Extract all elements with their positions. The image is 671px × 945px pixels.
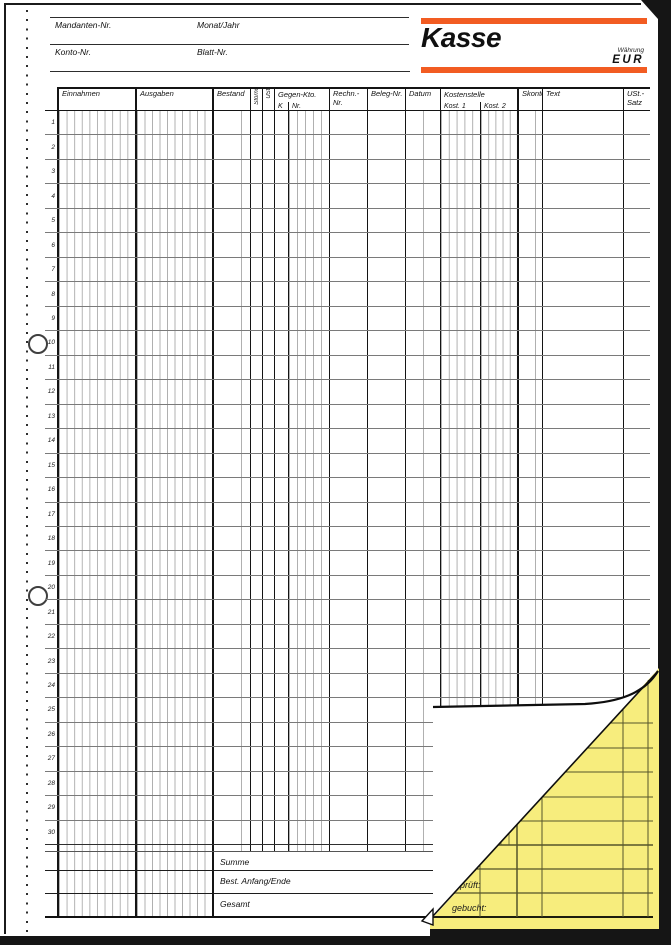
entry-cell	[329, 478, 367, 501]
entry-cell	[274, 282, 288, 305]
header-text: Text	[542, 87, 623, 110]
row-number: 13	[45, 405, 57, 428]
entry-cell	[212, 111, 250, 134]
entry-cell	[440, 478, 480, 501]
entry-cell	[288, 307, 329, 330]
entry-cell	[542, 405, 623, 428]
entry-cell	[57, 209, 135, 232]
entry-cell	[517, 135, 542, 158]
entry-cell	[262, 282, 274, 305]
entry-cell	[329, 576, 367, 599]
entry-cell	[367, 674, 405, 697]
row-number: 25	[45, 698, 57, 721]
entry-cell	[542, 527, 623, 550]
table-body: 1234567891011121314151617181920212223242…	[45, 111, 650, 845]
entry-cell	[57, 649, 135, 672]
entry-cell	[405, 454, 440, 477]
header-storno: Storno	[250, 87, 262, 110]
entry-cell	[623, 380, 650, 403]
entry-cell	[274, 478, 288, 501]
entry-cell	[135, 723, 212, 746]
header-skonto: Skonto	[517, 87, 542, 110]
entry-cell	[623, 845, 650, 851]
row-number: 2	[45, 135, 57, 158]
entry-cell	[250, 111, 262, 134]
header-kostenstelle: Kostenstelle	[441, 87, 517, 102]
entry-cell	[288, 454, 329, 477]
table-row: 26	[45, 723, 650, 747]
entry-cell	[135, 772, 212, 795]
entry-cell	[542, 454, 623, 477]
entry-cell	[262, 111, 274, 134]
entry-cell	[212, 503, 250, 526]
entry-cell	[212, 845, 250, 851]
entry-cell	[57, 307, 135, 330]
header-beleg-nr: Beleg-Nr.	[367, 87, 405, 110]
entry-cell	[623, 135, 650, 158]
tick-strip-row	[45, 845, 650, 852]
entry-cell	[623, 503, 650, 526]
row-number: 1	[45, 111, 57, 134]
entry-cell	[262, 356, 274, 379]
entry-cell	[262, 429, 274, 452]
entry-cell	[542, 503, 623, 526]
entry-cell	[517, 380, 542, 403]
entry-cell	[262, 380, 274, 403]
entry-cell	[405, 233, 440, 256]
entry-cell	[262, 600, 274, 623]
entry-cell	[623, 429, 650, 452]
entry-cell	[623, 331, 650, 354]
entry-cell	[623, 649, 650, 672]
entry-cell	[623, 356, 650, 379]
entry-cell	[250, 649, 262, 672]
entry-cell	[288, 233, 329, 256]
entry-cell	[405, 307, 440, 330]
entry-cell	[367, 282, 405, 305]
row-number: 28	[45, 772, 57, 795]
table-row: 29	[45, 796, 650, 820]
entry-cell	[57, 503, 135, 526]
entry-cell	[329, 821, 367, 844]
entry-cell	[288, 845, 329, 851]
table-row: 13	[45, 405, 650, 429]
entry-cell	[517, 674, 542, 697]
monat-jahr-label: Monat/Jahr	[197, 20, 240, 30]
entry-cell	[367, 160, 405, 183]
mandant-nr-label: Mandanten-Nr.	[55, 20, 111, 30]
entry-cell	[135, 331, 212, 354]
entry-cell	[623, 160, 650, 183]
entry-cell	[329, 551, 367, 574]
table-row: 25	[45, 698, 650, 722]
entry-cell	[274, 698, 288, 721]
row-number: 23	[45, 649, 57, 672]
entry-cell	[274, 405, 288, 428]
entry-cell	[517, 503, 542, 526]
entry-cell	[623, 723, 650, 746]
entry-cell	[274, 845, 288, 851]
entry-cell	[57, 405, 135, 428]
entry-cell	[288, 821, 329, 844]
entry-cell	[329, 723, 367, 746]
entry-cell	[329, 649, 367, 672]
entry-cell	[262, 625, 274, 648]
table-row: 21	[45, 600, 650, 624]
entry-cell	[440, 454, 480, 477]
entry-cell	[517, 821, 542, 844]
entry-cell	[288, 625, 329, 648]
entry-cell	[517, 184, 542, 207]
entry-cell	[405, 747, 440, 770]
entry-cell	[542, 209, 623, 232]
entry-cell	[57, 698, 135, 721]
entry-cell	[57, 625, 135, 648]
entry-cell	[250, 674, 262, 697]
entry-cell	[623, 111, 650, 134]
entry-cell	[212, 551, 250, 574]
entry-cell	[480, 429, 517, 452]
header-einnahmen: Einnahmen	[57, 87, 135, 110]
header-gegenkonto-group: Gegen-Kto. K Nr.	[274, 87, 329, 110]
entry-cell	[542, 160, 623, 183]
entry-cell	[480, 674, 517, 697]
entry-cell	[542, 111, 623, 134]
entry-cell	[405, 796, 440, 819]
entry-cell	[542, 796, 623, 819]
entry-cell	[329, 429, 367, 452]
entry-cell	[250, 796, 262, 819]
table-row: 17	[45, 503, 650, 527]
entry-cell	[517, 551, 542, 574]
entry-cell	[274, 723, 288, 746]
entry-cell	[405, 405, 440, 428]
entry-cell	[480, 551, 517, 574]
entry-cell	[262, 649, 274, 672]
entry-cell	[250, 356, 262, 379]
entry-cell	[57, 135, 135, 158]
entry-cell	[480, 111, 517, 134]
entry-cell	[405, 723, 440, 746]
entry-cell	[542, 380, 623, 403]
entry-cell	[542, 307, 623, 330]
entry-cell	[135, 576, 212, 599]
entry-cell	[367, 405, 405, 428]
entry-cell	[262, 307, 274, 330]
entry-cell	[329, 796, 367, 819]
entry-cell	[262, 258, 274, 281]
entry-cell	[274, 796, 288, 819]
entry-cell	[288, 478, 329, 501]
entry-cell	[57, 551, 135, 574]
entry-cell	[623, 184, 650, 207]
entry-cell	[623, 674, 650, 697]
entry-cell	[135, 747, 212, 770]
entry-cell	[288, 160, 329, 183]
entry-cell	[405, 380, 440, 403]
entry-cell	[542, 674, 623, 697]
entry-cell	[212, 625, 250, 648]
entry-cell	[367, 478, 405, 501]
entry-cell	[262, 821, 274, 844]
row-number: 12	[45, 380, 57, 403]
entry-cell	[274, 503, 288, 526]
entry-cell	[135, 625, 212, 648]
entry-cell	[250, 527, 262, 550]
entry-cell	[517, 331, 542, 354]
entry-cell	[367, 821, 405, 844]
entry-cell	[440, 307, 480, 330]
entry-cell	[367, 723, 405, 746]
entry-cell	[288, 674, 329, 697]
row-number: 8	[45, 282, 57, 305]
table-row: 8	[45, 282, 650, 306]
entry-cell	[440, 331, 480, 354]
entry-cell	[440, 135, 480, 158]
entry-cell	[135, 551, 212, 574]
entry-cell	[517, 747, 542, 770]
table-row: 10	[45, 331, 650, 355]
table-row: 16	[45, 478, 650, 502]
table-row: 27	[45, 747, 650, 771]
entry-cell	[517, 796, 542, 819]
entry-cell	[57, 723, 135, 746]
entry-cell	[517, 282, 542, 305]
entry-cell	[212, 160, 250, 183]
entry-cell	[57, 478, 135, 501]
entry-cell	[329, 845, 367, 851]
entry-cell	[288, 405, 329, 428]
table-row: 14	[45, 429, 650, 453]
header-rechnungs-nr: Rechn.-Nr.	[329, 87, 367, 110]
entry-cell	[329, 111, 367, 134]
perforation-dots	[26, 10, 28, 932]
entry-cell	[440, 380, 480, 403]
entry-cell	[623, 821, 650, 844]
entry-cell	[480, 184, 517, 207]
row-number: 18	[45, 527, 57, 550]
entry-cell	[262, 674, 274, 697]
entry-cell	[57, 527, 135, 550]
entry-cell	[250, 478, 262, 501]
entry-cell	[405, 551, 440, 574]
entry-cell	[329, 600, 367, 623]
entry-cell	[542, 551, 623, 574]
entry-cell	[405, 209, 440, 232]
entry-cell	[517, 258, 542, 281]
entry-cell	[250, 258, 262, 281]
entry-cell	[135, 135, 212, 158]
entry-cell	[274, 331, 288, 354]
entry-cell	[135, 503, 212, 526]
entry-cell	[480, 796, 517, 819]
entry-cell	[367, 380, 405, 403]
row-number: 16	[45, 478, 57, 501]
entry-cell	[135, 796, 212, 819]
entry-cell	[212, 747, 250, 770]
row-number: 11	[45, 356, 57, 379]
entry-cell	[274, 576, 288, 599]
entry-cell	[405, 772, 440, 795]
entry-cell	[367, 331, 405, 354]
entry-cell	[288, 576, 329, 599]
page-top-border	[4, 3, 641, 5]
table-row: 23	[45, 649, 650, 673]
entry-cell	[288, 698, 329, 721]
entry-cell	[367, 796, 405, 819]
entry-cell	[405, 649, 440, 672]
entry-cell	[288, 380, 329, 403]
entry-cell	[405, 845, 440, 851]
entry-cell	[262, 209, 274, 232]
entry-cell	[517, 429, 542, 452]
row-number: 22	[45, 625, 57, 648]
entry-cell	[262, 331, 274, 354]
entry-cell	[274, 649, 288, 672]
entry-cell	[480, 821, 517, 844]
entry-cell	[440, 405, 480, 428]
entry-cell	[517, 405, 542, 428]
entry-cell	[250, 698, 262, 721]
entry-cell	[367, 233, 405, 256]
entry-cell	[288, 796, 329, 819]
entry-cell	[542, 747, 623, 770]
entry-cell	[250, 135, 262, 158]
entry-cell	[542, 184, 623, 207]
entry-cell	[623, 747, 650, 770]
entry-cell	[517, 772, 542, 795]
entry-cell	[135, 405, 212, 428]
entry-cell	[274, 184, 288, 207]
entry-cell	[274, 111, 288, 134]
entry-cell	[288, 649, 329, 672]
entry-cell	[367, 135, 405, 158]
entry-cell	[135, 845, 212, 851]
entry-cell	[262, 723, 274, 746]
entry-cell	[57, 674, 135, 697]
entry-cell	[212, 356, 250, 379]
entry-cell	[542, 698, 623, 721]
table-row: 11	[45, 356, 650, 380]
entry-cell	[250, 160, 262, 183]
table-row: 6	[45, 233, 650, 257]
entry-cell	[542, 331, 623, 354]
entry-cell	[135, 160, 212, 183]
entry-cell	[480, 258, 517, 281]
entry-cell	[250, 307, 262, 330]
entry-cell	[517, 478, 542, 501]
entry-cell	[135, 674, 212, 697]
entry-cell	[250, 600, 262, 623]
row-number: 9	[45, 307, 57, 330]
entry-cell	[329, 454, 367, 477]
entry-cell	[262, 184, 274, 207]
entry-cell	[480, 209, 517, 232]
cash-book-page: Mandanten-Nr. Monat/Jahr Konto-Nr. Blatt…	[0, 0, 658, 936]
entry-cell	[440, 674, 480, 697]
entry-cell	[405, 135, 440, 158]
entry-cell	[250, 772, 262, 795]
table-row: 19	[45, 551, 650, 575]
entry-cell	[517, 649, 542, 672]
entry-cell	[517, 723, 542, 746]
entry-cell	[57, 845, 135, 851]
currency-code: EUR	[544, 54, 644, 66]
entry-cell	[212, 576, 250, 599]
entry-cell	[480, 527, 517, 550]
summary-row-summe: Summe	[45, 852, 650, 871]
entry-cell	[405, 821, 440, 844]
entry-cell	[440, 551, 480, 574]
table-row: 15	[45, 454, 650, 478]
entry-cell	[57, 600, 135, 623]
entry-cell	[212, 380, 250, 403]
row-number: 4	[45, 184, 57, 207]
entry-cell	[480, 454, 517, 477]
entry-cell	[250, 821, 262, 844]
entry-cell	[480, 772, 517, 795]
entry-cell	[405, 600, 440, 623]
entry-cell	[212, 478, 250, 501]
entry-cell	[57, 331, 135, 354]
entry-cell	[542, 772, 623, 795]
entry-cell	[517, 454, 542, 477]
entry-cell	[135, 282, 212, 305]
row-number: 20	[45, 576, 57, 599]
entry-cell	[250, 845, 262, 851]
entry-cell	[405, 258, 440, 281]
entry-cell	[542, 356, 623, 379]
entry-cell	[250, 209, 262, 232]
entry-cell	[480, 307, 517, 330]
entry-cell	[480, 160, 517, 183]
entry-cell	[262, 135, 274, 158]
entry-cell	[135, 307, 212, 330]
entry-cell	[329, 380, 367, 403]
entry-cell	[517, 160, 542, 183]
entry-cell	[274, 527, 288, 550]
header-k: K	[275, 102, 289, 110]
entry-cell	[440, 258, 480, 281]
entry-cell	[57, 747, 135, 770]
entry-cell	[329, 772, 367, 795]
entry-cell	[135, 649, 212, 672]
entry-cell	[517, 111, 542, 134]
entry-cell	[440, 160, 480, 183]
entry-cell	[329, 405, 367, 428]
entry-cell	[480, 405, 517, 428]
entry-cell	[262, 551, 274, 574]
write-line	[50, 17, 409, 18]
entry-cell	[250, 503, 262, 526]
row-number: 19	[45, 551, 57, 574]
currency-label: Währung	[544, 47, 644, 54]
entry-cell	[623, 772, 650, 795]
entry-cell	[405, 625, 440, 648]
header-kostenstelle-group: Kostenstelle Kost. 1 Kost. 2	[440, 87, 517, 110]
entry-cell	[274, 429, 288, 452]
entry-cell	[440, 698, 480, 721]
entry-cell	[623, 454, 650, 477]
entry-cell	[517, 307, 542, 330]
entry-cell	[274, 233, 288, 256]
header-ausgaben: Ausgaben	[135, 87, 212, 110]
entry-cell	[405, 698, 440, 721]
entry-cell	[135, 380, 212, 403]
entry-cell	[212, 429, 250, 452]
entry-cell	[367, 258, 405, 281]
entry-cell	[440, 503, 480, 526]
